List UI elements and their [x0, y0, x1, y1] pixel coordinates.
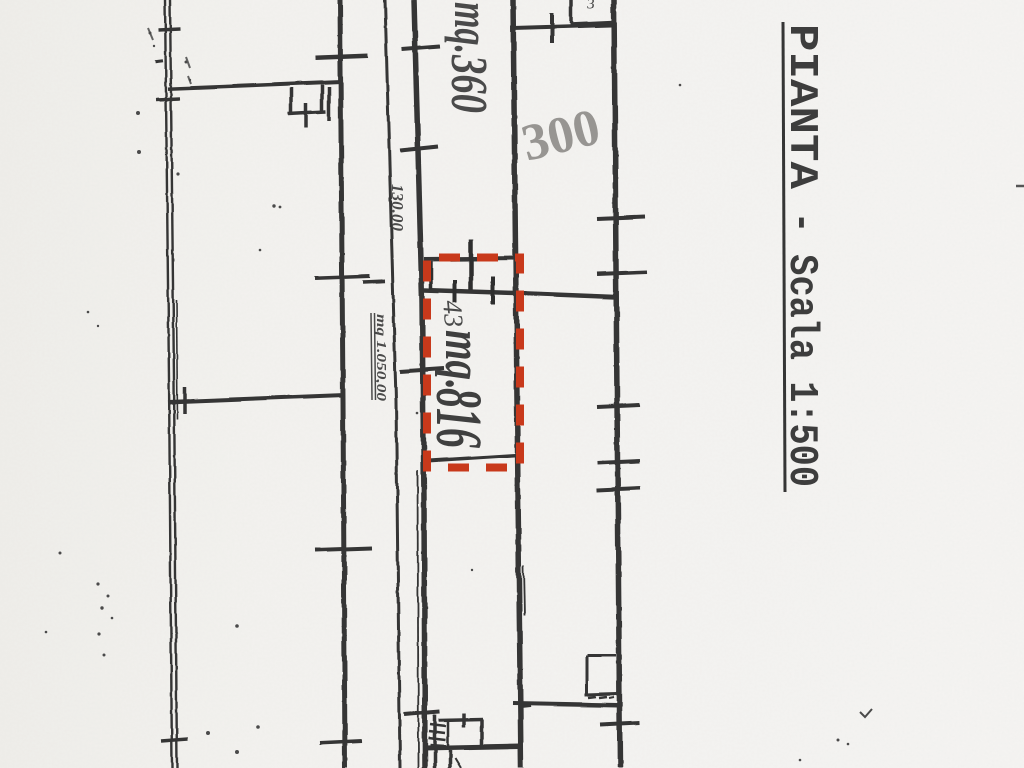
svg-text:360: 360: [440, 54, 497, 113]
svg-text:- Scala 1:500: - Scala 1:500: [778, 212, 824, 487]
svg-text:816: 816: [422, 388, 495, 448]
svg-text:43: 43: [437, 299, 469, 329]
svg-text:mq.: mq.: [444, 2, 500, 54]
svg-text:mq.: mq.: [434, 330, 491, 390]
svg-text:PIANTA: PIANTA: [778, 24, 824, 189]
svg-text:3: 3: [587, 0, 595, 13]
svg-text:130.00: 130.00: [388, 184, 407, 232]
